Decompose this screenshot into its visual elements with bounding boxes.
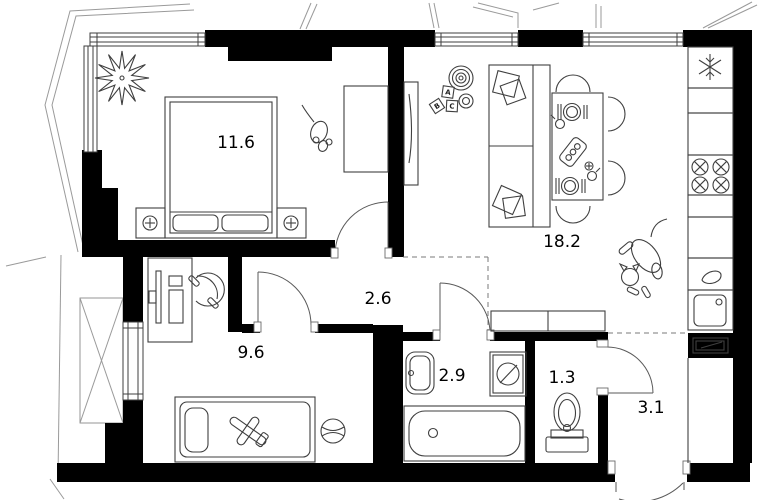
facade-line: [6, 257, 46, 266]
cutting-board: [558, 136, 588, 168]
cat-icon: [618, 219, 667, 298]
keyboard: [169, 276, 182, 286]
kids-bed: [175, 397, 315, 462]
pillow: [222, 215, 268, 231]
facade-line: [300, 3, 311, 29]
facade-line: [703, 2, 752, 28]
nightstand-left: [136, 208, 165, 238]
mouse-icon: [302, 105, 332, 153]
sideboard: [491, 311, 605, 331]
room-label-kids-room: 9.6: [237, 343, 264, 363]
monitor: [156, 271, 161, 323]
nightstand-right: [277, 208, 306, 238]
monitor-stand: [149, 291, 156, 303]
kids-room-door-arc: [258, 272, 311, 325]
wardrobe: [344, 86, 388, 172]
sofa-pillow: [492, 185, 521, 214]
room-label-bedroom: 11.6: [217, 133, 255, 153]
plant-icon: [95, 51, 149, 105]
room-label-entry-hall: 3.1: [637, 398, 664, 418]
kitchen-counter-run: [688, 47, 733, 330]
sofa-pillow: [503, 196, 526, 219]
pc-tower: [169, 290, 183, 323]
floor-plan: A B C: [0, 0, 770, 500]
room-labels: 11.6 18.2 2.6 9.6 2.9 1.3 3.1: [217, 133, 664, 418]
floor-plan-svg: A B C: [0, 0, 770, 500]
tv: [404, 82, 418, 185]
living-window-right: [583, 33, 683, 46]
room-label-hallway: 2.6: [364, 289, 391, 309]
facade-line: [306, 4, 317, 29]
stove-burners-icon: [692, 159, 729, 193]
pillow: [185, 408, 208, 452]
facade-line: [58, 255, 61, 478]
facade-line: [708, 5, 757, 28]
faucet-icon: [702, 271, 721, 283]
bathtub: [404, 406, 525, 461]
balcony-cross: [80, 298, 123, 423]
facade-line: [473, 7, 513, 17]
snowflake-fridge-icon: [699, 54, 721, 80]
room-label-living-kitchen: 18.2: [543, 232, 581, 252]
ball-icon: [321, 419, 345, 443]
kids-room-window: [123, 322, 143, 400]
living-window-left: [435, 33, 518, 46]
toilet: [546, 393, 588, 452]
dining-chairs: [556, 75, 625, 223]
bedroom-door-arc: [335, 202, 388, 255]
facade-line: [533, 3, 559, 10]
bathroom-door-arc: [440, 283, 490, 333]
desk-chair: [196, 273, 224, 306]
facade-line: [434, 3, 439, 28]
bedroom-window: [84, 33, 205, 152]
block-letter: A: [445, 88, 452, 97]
block-letter: C: [449, 102, 455, 110]
toy-blocks-icon: A B C: [429, 86, 457, 114]
pillow: [173, 215, 218, 231]
headphones-icon: [188, 275, 219, 309]
sofa-pillow: [500, 79, 526, 105]
wc-door-arc: [607, 347, 653, 393]
facade-line: [429, 3, 434, 28]
sofa: [489, 65, 550, 227]
dining-table: [551, 93, 603, 200]
room-label-wc: 1.3: [548, 368, 575, 388]
entrance-door-arc: [619, 483, 683, 500]
desk: [148, 258, 192, 342]
facade-line: [478, 3, 518, 28]
room-label-bathroom: 2.9: [438, 366, 465, 386]
bathroom-sink: [406, 352, 434, 394]
double-bed: [165, 97, 277, 238]
washing-machine-icon: [490, 352, 526, 396]
kitchen-sink: [694, 295, 726, 326]
toy-plane-icon: [229, 416, 269, 448]
